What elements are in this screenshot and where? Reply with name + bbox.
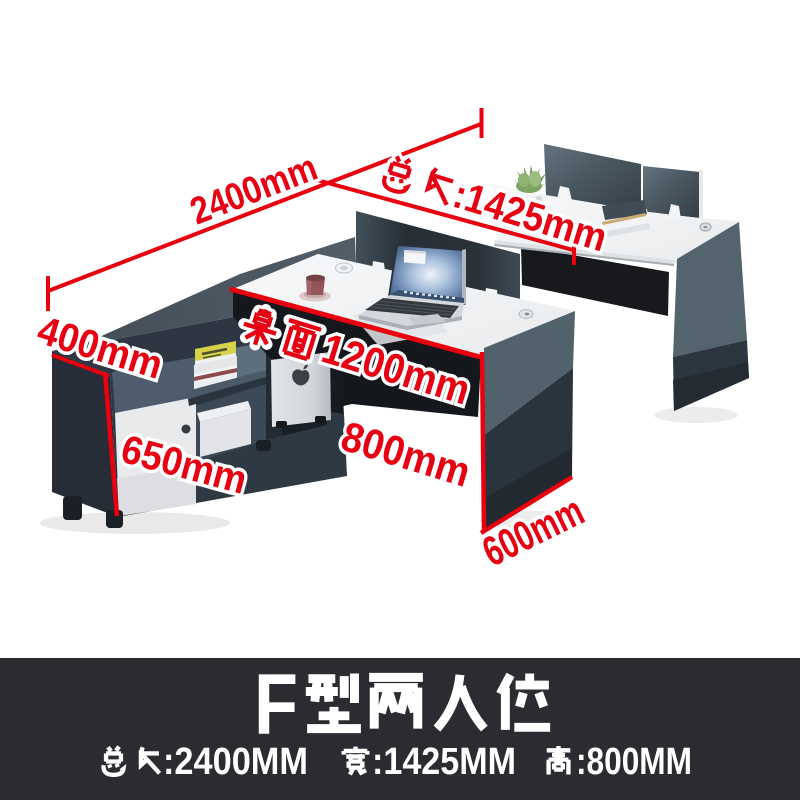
svg-text::800MM: :800MM <box>576 741 692 783</box>
svg-text::2400MM: :2400MM <box>163 741 308 783</box>
svg-text::1425MM: :1425MM <box>372 741 516 783</box>
svg-text:F: F <box>254 657 298 753</box>
